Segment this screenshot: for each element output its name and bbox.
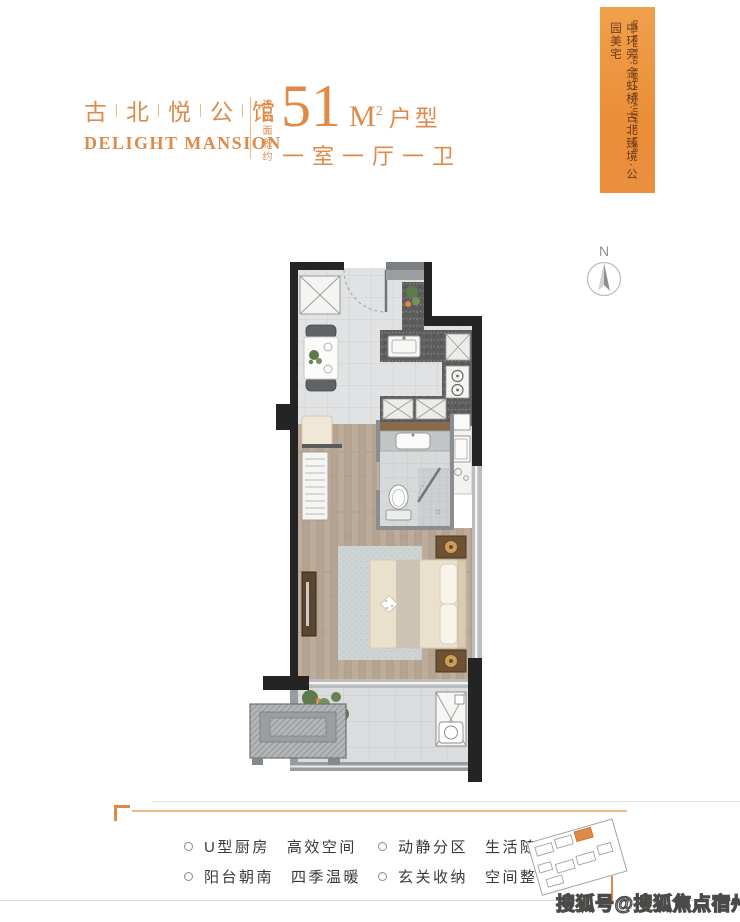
compass-north-label: N	[599, 243, 609, 259]
bathroom-vanity	[380, 422, 450, 451]
bullet-circle-icon	[378, 872, 387, 881]
corner-bracket	[114, 805, 130, 821]
shoe-cabinet	[302, 452, 328, 520]
cabinet-x-corner	[446, 334, 470, 360]
nightstand-bottom	[436, 650, 466, 672]
feature-kitchen: U型厨房高效空间	[184, 836, 357, 857]
bullet-circle-icon	[184, 842, 193, 851]
footer-top-line	[152, 801, 740, 802]
feature-balcony: 阳台朝南四季温暖	[184, 866, 361, 887]
shaft-box	[300, 276, 340, 314]
brand-char-divider	[242, 104, 243, 117]
bullet-circle-icon	[378, 842, 387, 851]
slogan-en: DELIGHT TO SEE A BEAUTIFUL LIFE	[631, 20, 638, 190]
brand-en: DELIGHT MANSION	[84, 133, 282, 154]
area-unit: M2	[349, 100, 383, 134]
dining-chair-bottom	[306, 378, 336, 391]
bed	[370, 560, 466, 648]
nightstand-top	[436, 536, 466, 558]
shower	[418, 468, 450, 526]
area-prefix: 建筑面积约	[258, 99, 273, 164]
tv-console	[302, 572, 316, 636]
stove	[446, 366, 469, 398]
footer-accent-line	[132, 810, 627, 812]
brand-char: 北	[126, 93, 149, 127]
dining-chair-top	[306, 325, 336, 338]
dining-table	[304, 337, 338, 379]
header-divider	[250, 97, 251, 159]
flyer-page: 古北悦公馆 DELIGHT MANSION 建筑面积约 51 M2 户型 一室一…	[0, 0, 740, 922]
kitchen-sink	[388, 336, 420, 357]
washing-machine	[436, 692, 466, 746]
watermark: 搜狐号@搜狐焦点宿州站	[556, 889, 740, 916]
brand-cn: 古北悦公馆	[84, 93, 275, 127]
slogan-banner: 中环旁·金虹桥·古北臻境·公园美宅 DELIGHT TO SEE A BEAUT…	[600, 7, 655, 193]
brand-char-divider	[200, 104, 201, 117]
bench-planter	[250, 704, 346, 765]
layout-description: 一室一厅一卫	[282, 139, 462, 171]
area-number: 51	[281, 76, 341, 136]
brand-char: 古	[84, 93, 107, 127]
brand-char-divider	[158, 104, 159, 117]
brand-char: 公	[210, 93, 233, 127]
brand-char-divider	[116, 104, 117, 117]
compass: N	[580, 240, 628, 302]
floorplan	[240, 254, 496, 790]
bullet-circle-icon	[184, 872, 193, 881]
brand-char: 悦	[168, 93, 191, 127]
area-suffix: 户型	[389, 99, 441, 133]
area-row: 51 M2 户型	[281, 76, 441, 136]
